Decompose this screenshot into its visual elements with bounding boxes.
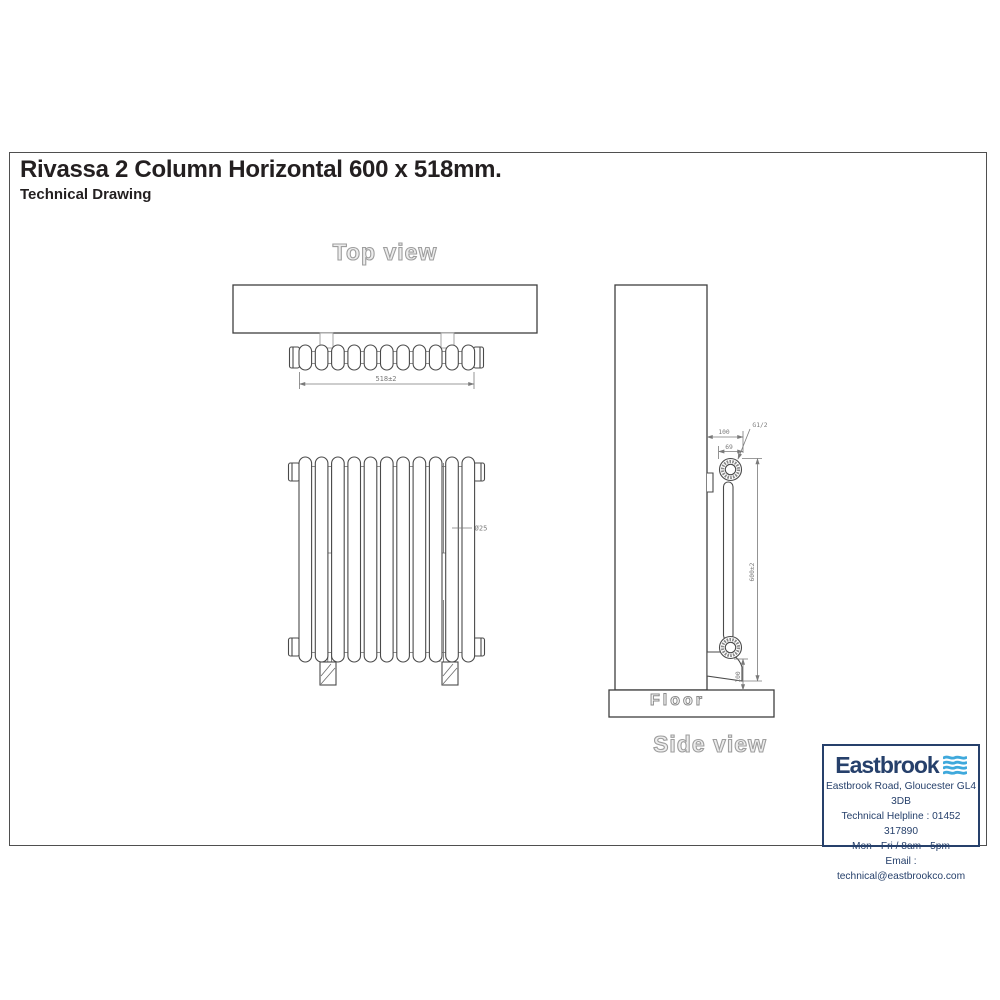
front-view-drawing: Ø25 (289, 457, 488, 685)
connection-callout: G1/2 (738, 422, 768, 459)
side-wall-bracket (707, 473, 713, 492)
top-width-dimension: 518±2 (300, 372, 475, 389)
brand-row: Eastbrook (824, 751, 978, 779)
bottom-header-tube-end (720, 637, 742, 659)
eastbrook-waves-icon (943, 754, 967, 776)
depth-text: 69 (725, 444, 733, 451)
height-dimension: 600±2 (742, 459, 762, 682)
supplier-hours: Mon - Fri / 8am - 5pm (824, 839, 978, 854)
depth-overall-text: 100 (718, 429, 730, 436)
page: Rivassa 2 Column Horizontal 600 x 518mm.… (0, 0, 1000, 1000)
radiator-columns (299, 457, 475, 662)
column-diameter-text: Ø25 (475, 525, 488, 533)
side-wall (615, 285, 707, 690)
top-header-tube-end (720, 459, 742, 481)
height-text: 600±2 (749, 562, 756, 581)
supplier-info-box: Eastbrook Eastbrook Road, Gloucester GL4… (822, 744, 980, 847)
connection-text: G1/2 (752, 422, 767, 429)
supplier-address: Eastbrook Road, Gloucester GL4 3DB (824, 779, 978, 809)
side-view-drawing: 100 69 G1/2 600±2 100 (609, 285, 774, 717)
side-column-tube (724, 482, 734, 640)
brand-name: Eastbrook (835, 752, 938, 779)
side-view-label: Side view (625, 731, 795, 758)
supplier-helpline: Technical Helpline : 01452 317890 (824, 809, 978, 839)
radiator-top-view (290, 345, 484, 370)
floor-feet-brackets (320, 662, 458, 685)
depth-dimension: 69 (719, 444, 743, 459)
floor-clearance-text: 100 (735, 671, 742, 683)
floor-label: Floor (650, 692, 705, 710)
supplier-email: Email : technical@eastbrookco.com (824, 854, 978, 884)
top-view-drawing: 518±2 (233, 285, 537, 389)
top-width-dim-text: 518±2 (375, 375, 396, 383)
top-wall (233, 285, 537, 333)
